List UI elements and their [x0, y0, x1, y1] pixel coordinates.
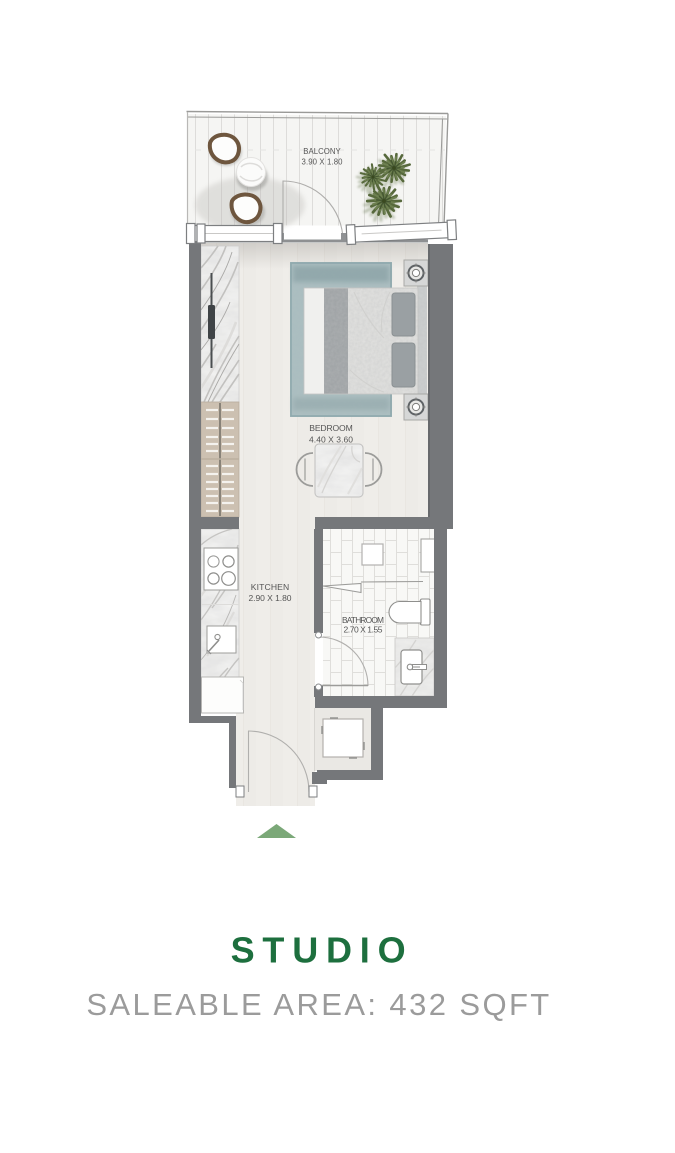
- svg-text:KITCHEN: KITCHEN: [251, 582, 290, 592]
- svg-text:3.90 X 1.80: 3.90 X 1.80: [302, 158, 344, 167]
- svg-text:BALCONY: BALCONY: [303, 147, 341, 156]
- svg-text:BEDROOM: BEDROOM: [309, 423, 353, 433]
- svg-text:SALEABLE AREA: 432 SQFT: SALEABLE AREA: 432 SQFT: [86, 987, 551, 1022]
- svg-text:BATHROOM: BATHROOM: [342, 615, 384, 625]
- svg-text:2.90 X 1.80: 2.90 X 1.80: [249, 593, 292, 603]
- svg-text:2.70 X 1.55: 2.70 X 1.55: [344, 625, 383, 635]
- svg-text:STUDIO: STUDIO: [231, 930, 414, 971]
- svg-text:4.40 X 3.60: 4.40 X 3.60: [309, 435, 353, 445]
